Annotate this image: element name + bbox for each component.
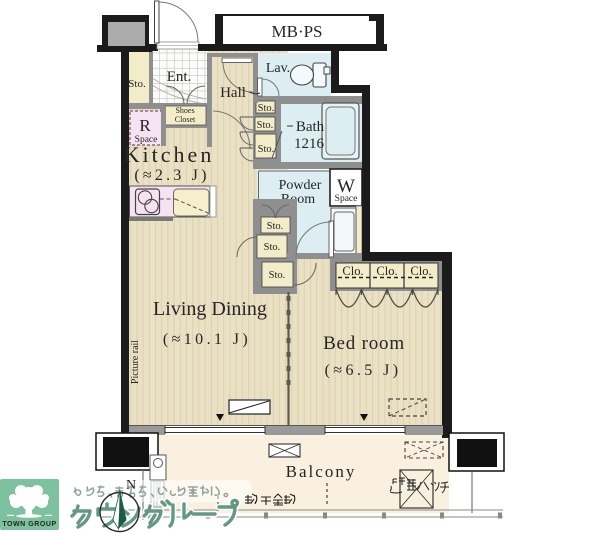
svg-text:Picture rail: Picture rail: [130, 340, 141, 384]
svg-text:Living Dining: Living Dining: [153, 298, 267, 320]
svg-text:Lav.: Lav.: [266, 61, 290, 76]
svg-text:Sto.: Sto.: [264, 242, 281, 253]
svg-text:Kitchen: Kitchen: [124, 142, 215, 167]
svg-text:Bath: Bath: [296, 119, 325, 135]
svg-text:Shoes: Shoes: [175, 106, 194, 115]
svg-text:Sto.: Sto.: [258, 144, 275, 155]
svg-text:Hall: Hall: [220, 85, 246, 101]
svg-text:Sto.: Sto.: [257, 120, 274, 131]
svg-text:(≈6.5 J): (≈6.5 J): [325, 362, 402, 379]
svg-text:Sto.: Sto.: [267, 221, 284, 232]
svg-text:Clo.: Clo.: [376, 264, 397, 278]
svg-text:Space: Space: [335, 194, 358, 204]
svg-text:Sto.: Sto.: [128, 78, 146, 90]
svg-text:R: R: [139, 116, 151, 135]
svg-text:Sto.: Sto.: [258, 103, 275, 114]
svg-text:(≈10.1 J): (≈10.1 J): [163, 331, 251, 348]
svg-text:1216: 1216: [294, 136, 325, 152]
svg-text:N: N: [126, 478, 136, 493]
svg-text:Balcony: Balcony: [286, 462, 357, 481]
svg-text:Bed room: Bed room: [323, 333, 405, 354]
svg-text:MB·PS: MB·PS: [271, 22, 322, 41]
svg-text:Clo.: Clo.: [342, 264, 363, 278]
svg-text:Powder: Powder: [279, 178, 322, 193]
svg-text:Sto.: Sto.: [269, 270, 286, 281]
svg-text:Ent.: Ent.: [167, 69, 192, 85]
svg-text:Clo.: Clo.: [410, 264, 431, 278]
svg-text:(≈2.3 J): (≈2.3 J): [134, 167, 209, 184]
svg-text:Closet: Closet: [175, 115, 196, 124]
svg-text:TOWN GROUP: TOWN GROUP: [2, 521, 56, 528]
